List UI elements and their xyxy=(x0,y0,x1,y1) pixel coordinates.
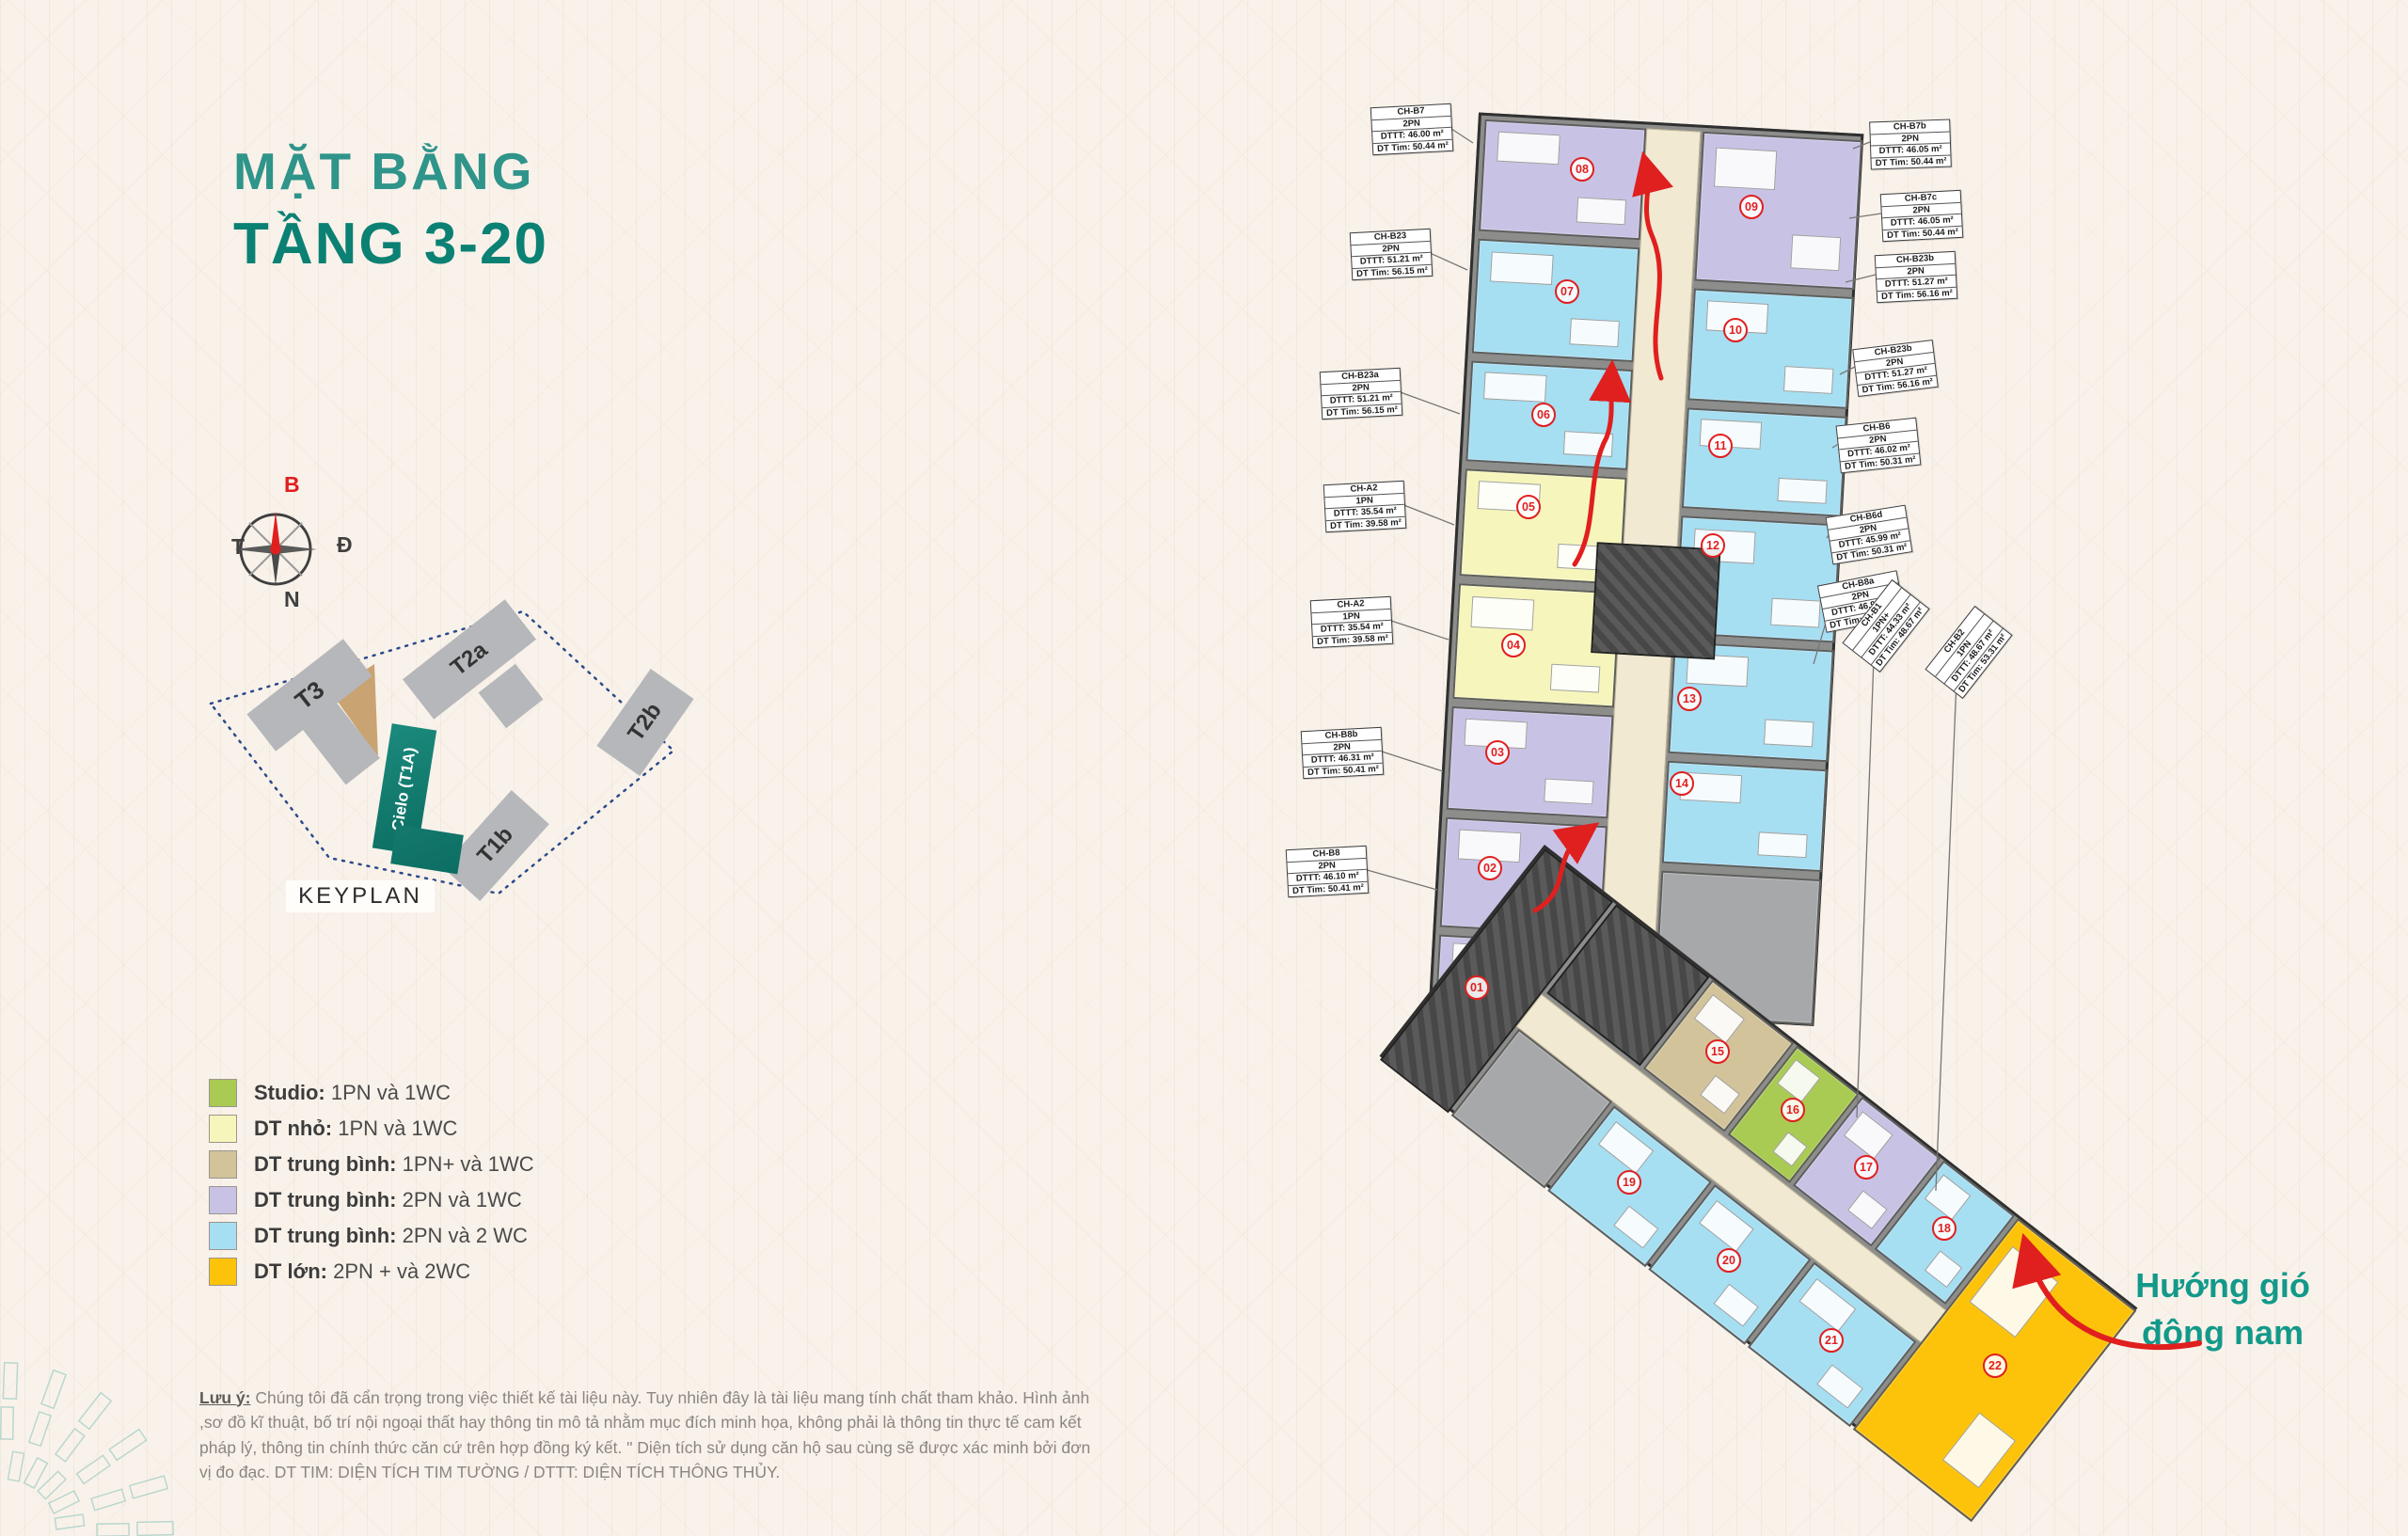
disclaimer-note: Lưu ý: Chúng tôi đã cẩn trọng trong việc… xyxy=(199,1386,1095,1485)
callout-ch-b2: CH-B21PN DTTT: 48.67 m²DT Tim: 53.31 m² xyxy=(1925,606,2012,699)
unit-03 xyxy=(1447,706,1614,818)
legend-swatch-dt-lon xyxy=(209,1258,237,1286)
unit-number-badge-16: 16 xyxy=(1781,1098,1805,1122)
legend-item-dt-tb-2pn2wc: DT trung bình: 2PN và 2 WC xyxy=(209,1223,528,1249)
fan-decoration xyxy=(1,1363,173,1536)
unit-number-badge-17: 17 xyxy=(1854,1155,1878,1180)
unit-07 xyxy=(1472,239,1640,362)
unit-number-badge-02: 02 xyxy=(1478,856,1502,880)
unit-number-badge-18: 18 xyxy=(1932,1216,1956,1241)
unit-number-badge-03: 03 xyxy=(1485,740,1510,765)
legend-item-dt-nho: DT nhỏ: 1PN và 1WC xyxy=(209,1116,457,1142)
unit-09 xyxy=(1694,132,1862,290)
compass-north-label: B xyxy=(284,472,300,498)
unit-08 xyxy=(1479,119,1646,240)
unit-number-badge-09: 09 xyxy=(1739,195,1764,219)
unit-number-badge-19: 19 xyxy=(1617,1170,1641,1195)
callout-ch-a2-upper: CH-A21PN DTTT: 35.54 m²DT Tim: 39.58 m² xyxy=(1323,481,1407,532)
wind-direction-label: Hướng gió đông nam xyxy=(2105,1262,2340,1356)
legend-swatch-dt-tb-2pn1wc xyxy=(209,1186,237,1214)
unit-number-badge-07: 07 xyxy=(1555,279,1579,304)
callout-ch-b6: CH-B62PN DTTT: 46.02 m²DT Tim: 50.31 m² xyxy=(1836,418,1922,474)
keyplan-label: KEYPLAN xyxy=(286,880,435,912)
unit-number-badge-12: 12 xyxy=(1701,533,1725,558)
callout-ch-b23b-upper: CH-B23b2PN DTTT: 51.27 m²DT Tim: 56.16 m… xyxy=(1875,251,1958,303)
legend-swatch-dt-nho xyxy=(209,1115,237,1143)
unit-number-badge-06: 06 xyxy=(1531,403,1556,427)
page-title: MẶT BẰNG xyxy=(233,141,534,201)
stair-elevator-core-top xyxy=(1591,542,1720,659)
compass-east-label: Đ xyxy=(337,532,353,558)
page-subtitle-floors: TẦNG 3-20 xyxy=(233,211,548,277)
brochure-page: { "page": { "title_line1": "MẶT BẰNG", "… xyxy=(0,0,2408,1536)
compass-west-label: T xyxy=(231,534,245,560)
legend-item-dt-tb-1pn: DT trung bình: 1PN+ và 1WC xyxy=(209,1151,534,1178)
unit-11 xyxy=(1682,407,1847,516)
callout-ch-b8b: CH-B8b2PN DTTT: 46.31 m²DT Tim: 50.41 m² xyxy=(1301,727,1385,779)
floorplan-wing-top xyxy=(1429,112,1863,1025)
unit-number-badge-10: 10 xyxy=(1723,318,1748,342)
callout-ch-b7c: CH-B7c2PN DTTT: 46.05 m²DT Tim: 50.44 m² xyxy=(1880,190,1964,242)
callout-ch-b23a: CH-B23a2PN DTTT: 51.21 m²DT Tim: 56.15 m… xyxy=(1320,368,1403,420)
callout-ch-b7: CH-B72PN DTTT: 46.00 m²DT Tim: 50.44 m² xyxy=(1370,103,1454,155)
unit-number-badge-22: 22 xyxy=(1983,1354,2007,1378)
callout-ch-b23: CH-B232PN DTTT: 51.21 m²DT Tim: 56.15 m² xyxy=(1350,229,1434,280)
unit-number-badge-08: 08 xyxy=(1570,157,1594,182)
unit-10 xyxy=(1687,289,1853,409)
unit-number-badge-14: 14 xyxy=(1670,771,1694,796)
legend-swatch-dt-tb-1pn xyxy=(209,1150,237,1179)
callout-ch-a2-lower: CH-A21PN DTTT: 35.54 m²DT Tim: 39.58 m² xyxy=(1310,596,1394,648)
unit-number-badge-05: 05 xyxy=(1516,495,1541,519)
unit-number-badge-15: 15 xyxy=(1705,1039,1730,1064)
legend-item-dt-tb-2pn1wc: DT trung bình: 2PN và 1WC xyxy=(209,1187,522,1213)
legend-item-studio: Studio: 1PN và 1WC xyxy=(209,1080,451,1106)
unit-number-badge-01: 01 xyxy=(1465,975,1489,1000)
unit-number-badge-04: 04 xyxy=(1501,633,1526,657)
unit-number-badge-20: 20 xyxy=(1717,1248,1741,1273)
unit-number-badge-13: 13 xyxy=(1677,687,1702,711)
callout-ch-b8: CH-B82PN DTTT: 46.10 m²DT Tim: 50.41 m² xyxy=(1286,846,1370,897)
legend-swatch-dt-tb-2pn2wc xyxy=(209,1222,237,1250)
callout-ch-b7b: CH-B7b2PN DTTT: 46.05 m²DT Tim: 50.44 m² xyxy=(1869,119,1952,170)
callout-ch-b23b-lower: CH-B23b2PN DTTT: 51.27 m²DT Tim: 56.16 m… xyxy=(1852,340,1939,397)
unit-number-badge-11: 11 xyxy=(1708,434,1733,458)
keyplan: T3 T2a T2b T1b Cielo (T1A) KEYPLAN xyxy=(188,593,696,931)
legend-swatch-studio xyxy=(209,1079,237,1107)
unit-number-badge-21: 21 xyxy=(1819,1328,1844,1353)
legend-item-dt-lon: DT lớn: 2PN + và 2WC xyxy=(209,1259,470,1285)
